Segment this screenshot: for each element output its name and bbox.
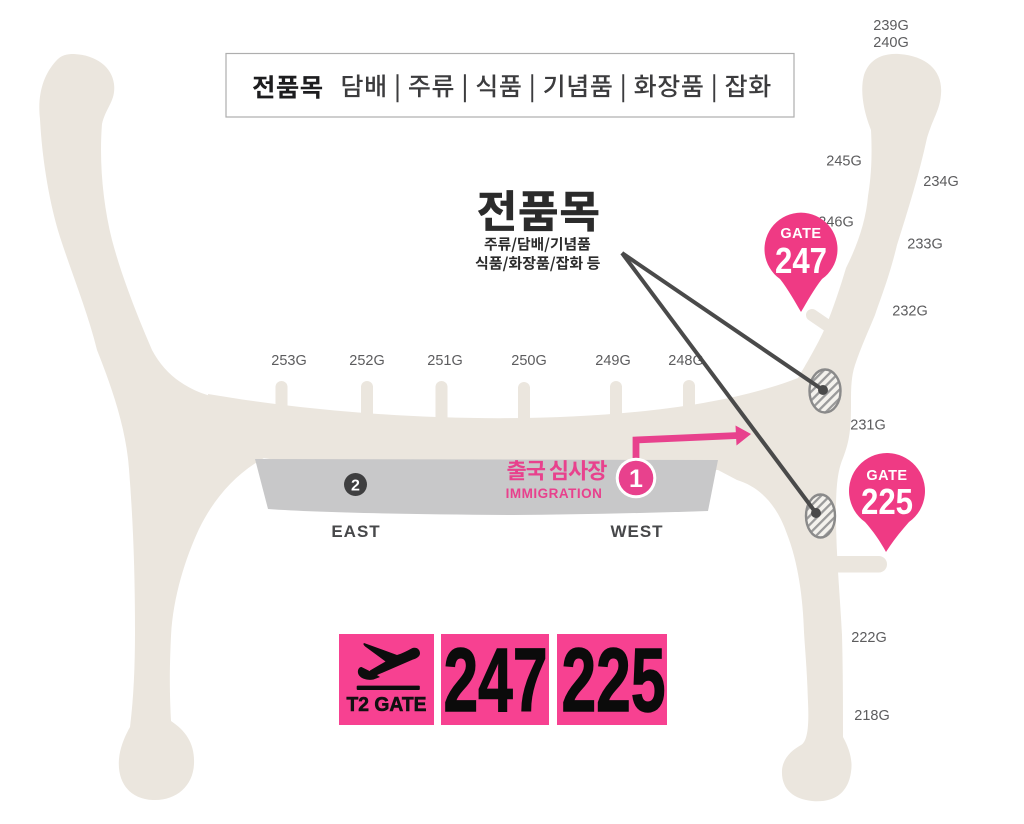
svg-text:EAST: EAST — [331, 522, 380, 541]
svg-text:252G: 252G — [349, 353, 384, 369]
svg-text:233G: 233G — [907, 237, 942, 253]
svg-text:251G: 251G — [427, 353, 462, 369]
svg-text:1: 1 — [629, 465, 643, 493]
svg-text:247: 247 — [444, 631, 548, 731]
svg-text:2: 2 — [351, 478, 360, 495]
svg-text:245G: 245G — [826, 154, 861, 170]
svg-text:250G: 250G — [511, 353, 546, 369]
svg-text:247: 247 — [775, 240, 827, 281]
svg-text:T2 GATE: T2 GATE — [347, 693, 427, 716]
svg-text:231G: 231G — [850, 418, 885, 434]
svg-text:IMMIGRATION: IMMIGRATION — [506, 486, 603, 501]
svg-text:253G: 253G — [271, 353, 306, 369]
svg-text:249G: 249G — [595, 353, 630, 369]
svg-text:225: 225 — [861, 481, 913, 522]
svg-text:234G: 234G — [923, 174, 958, 190]
svg-text:239G: 239G — [873, 18, 908, 34]
svg-text:225: 225 — [562, 631, 666, 731]
svg-text:222G: 222G — [851, 630, 886, 646]
svg-text:218G: 218G — [854, 708, 889, 724]
svg-text:232G: 232G — [892, 304, 927, 320]
svg-text:WEST: WEST — [610, 522, 663, 541]
svg-text:240G: 240G — [873, 35, 908, 51]
